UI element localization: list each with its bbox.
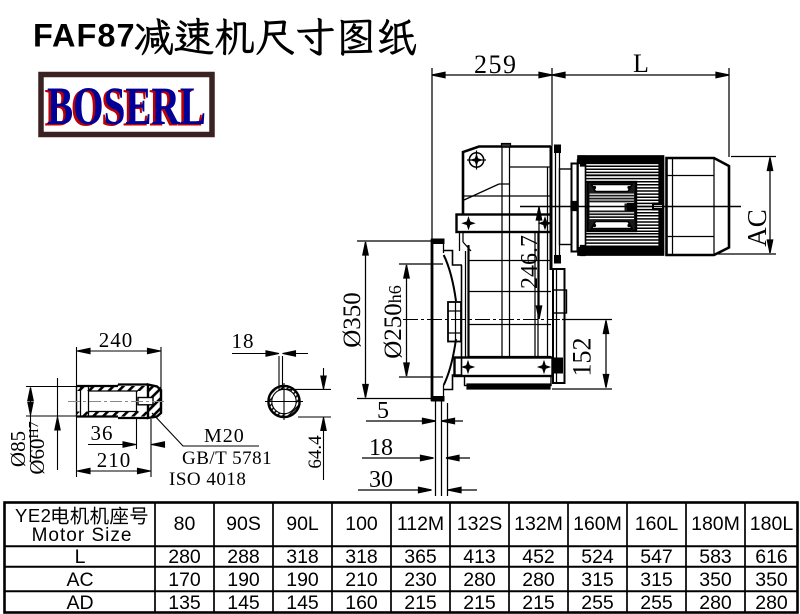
svg-text:M20: M20 xyxy=(204,425,245,447)
svg-text:170: 170 xyxy=(168,569,201,591)
svg-text:246.7: 246.7 xyxy=(517,235,543,289)
svg-text:30: 30 xyxy=(369,467,393,493)
svg-text:FAF87: FAF87 xyxy=(33,18,136,54)
svg-text:18: 18 xyxy=(232,329,255,353)
svg-text:280: 280 xyxy=(168,546,201,568)
svg-text:524: 524 xyxy=(581,546,614,568)
svg-text:350: 350 xyxy=(699,569,732,591)
svg-text:255: 255 xyxy=(581,592,614,614)
svg-text:350: 350 xyxy=(755,569,788,591)
svg-text:AD: AD xyxy=(66,592,93,614)
svg-text:5: 5 xyxy=(377,398,389,424)
svg-text:AC: AC xyxy=(742,209,772,247)
svg-text:180M: 180M xyxy=(691,513,740,535)
svg-text:GB/T 5781: GB/T 5781 xyxy=(182,448,272,469)
svg-text:80: 80 xyxy=(174,513,196,535)
svg-text:160L: 160L xyxy=(635,513,679,535)
svg-text:583: 583 xyxy=(699,546,732,568)
svg-text:215: 215 xyxy=(404,592,437,614)
svg-text:190: 190 xyxy=(286,569,319,591)
svg-text:AC: AC xyxy=(66,569,93,591)
svg-text:132M: 132M xyxy=(514,513,563,535)
svg-text:90L: 90L xyxy=(286,513,319,535)
svg-text:160M: 160M xyxy=(573,513,622,535)
svg-text:90S: 90S xyxy=(226,513,261,535)
svg-text:210: 210 xyxy=(97,448,132,472)
svg-text:452: 452 xyxy=(522,546,555,568)
svg-text:259: 259 xyxy=(474,50,518,79)
svg-text:Motor Size: Motor Size xyxy=(32,525,133,546)
svg-text:616: 616 xyxy=(755,546,788,568)
svg-text:180L: 180L xyxy=(750,513,794,535)
svg-text:BOSERL: BOSERL xyxy=(47,76,206,136)
svg-text:160: 160 xyxy=(345,592,378,614)
svg-text:413: 413 xyxy=(463,546,496,568)
svg-text:210: 210 xyxy=(345,569,378,591)
svg-text:215: 215 xyxy=(522,592,555,614)
svg-text:L: L xyxy=(75,546,86,568)
svg-text:Ø350: Ø350 xyxy=(339,292,366,348)
svg-text:152: 152 xyxy=(568,338,597,377)
svg-text:190: 190 xyxy=(227,569,260,591)
svg-text:ISO 4018: ISO 4018 xyxy=(169,469,246,490)
svg-text:280: 280 xyxy=(522,569,555,591)
svg-text:315: 315 xyxy=(581,569,614,591)
svg-text:YE2: YE2 xyxy=(15,505,51,526)
svg-text:145: 145 xyxy=(286,592,319,614)
svg-text:280: 280 xyxy=(463,569,496,591)
svg-text:18: 18 xyxy=(369,435,393,461)
svg-text:215: 215 xyxy=(463,592,496,614)
svg-text:100: 100 xyxy=(345,513,378,535)
svg-text:132S: 132S xyxy=(457,513,503,535)
svg-text:318: 318 xyxy=(286,546,319,568)
svg-text:135: 135 xyxy=(168,592,201,614)
svg-text:547: 547 xyxy=(640,546,673,568)
svg-text:255: 255 xyxy=(640,592,673,614)
svg-text:145: 145 xyxy=(227,592,260,614)
svg-text:230: 230 xyxy=(404,569,437,591)
svg-text:36: 36 xyxy=(91,421,114,445)
svg-text:280: 280 xyxy=(755,592,788,614)
svg-text:365: 365 xyxy=(404,546,437,568)
svg-text:240: 240 xyxy=(99,328,134,352)
svg-text:Ø250h6: Ø250h6 xyxy=(380,285,407,359)
svg-text:112M: 112M xyxy=(397,513,444,535)
svg-text:315: 315 xyxy=(640,569,673,591)
svg-text:318: 318 xyxy=(345,546,378,568)
svg-text:L: L xyxy=(633,49,649,78)
svg-text:280: 280 xyxy=(699,592,732,614)
svg-text:64.4: 64.4 xyxy=(305,435,326,469)
svg-text:288: 288 xyxy=(227,546,260,568)
